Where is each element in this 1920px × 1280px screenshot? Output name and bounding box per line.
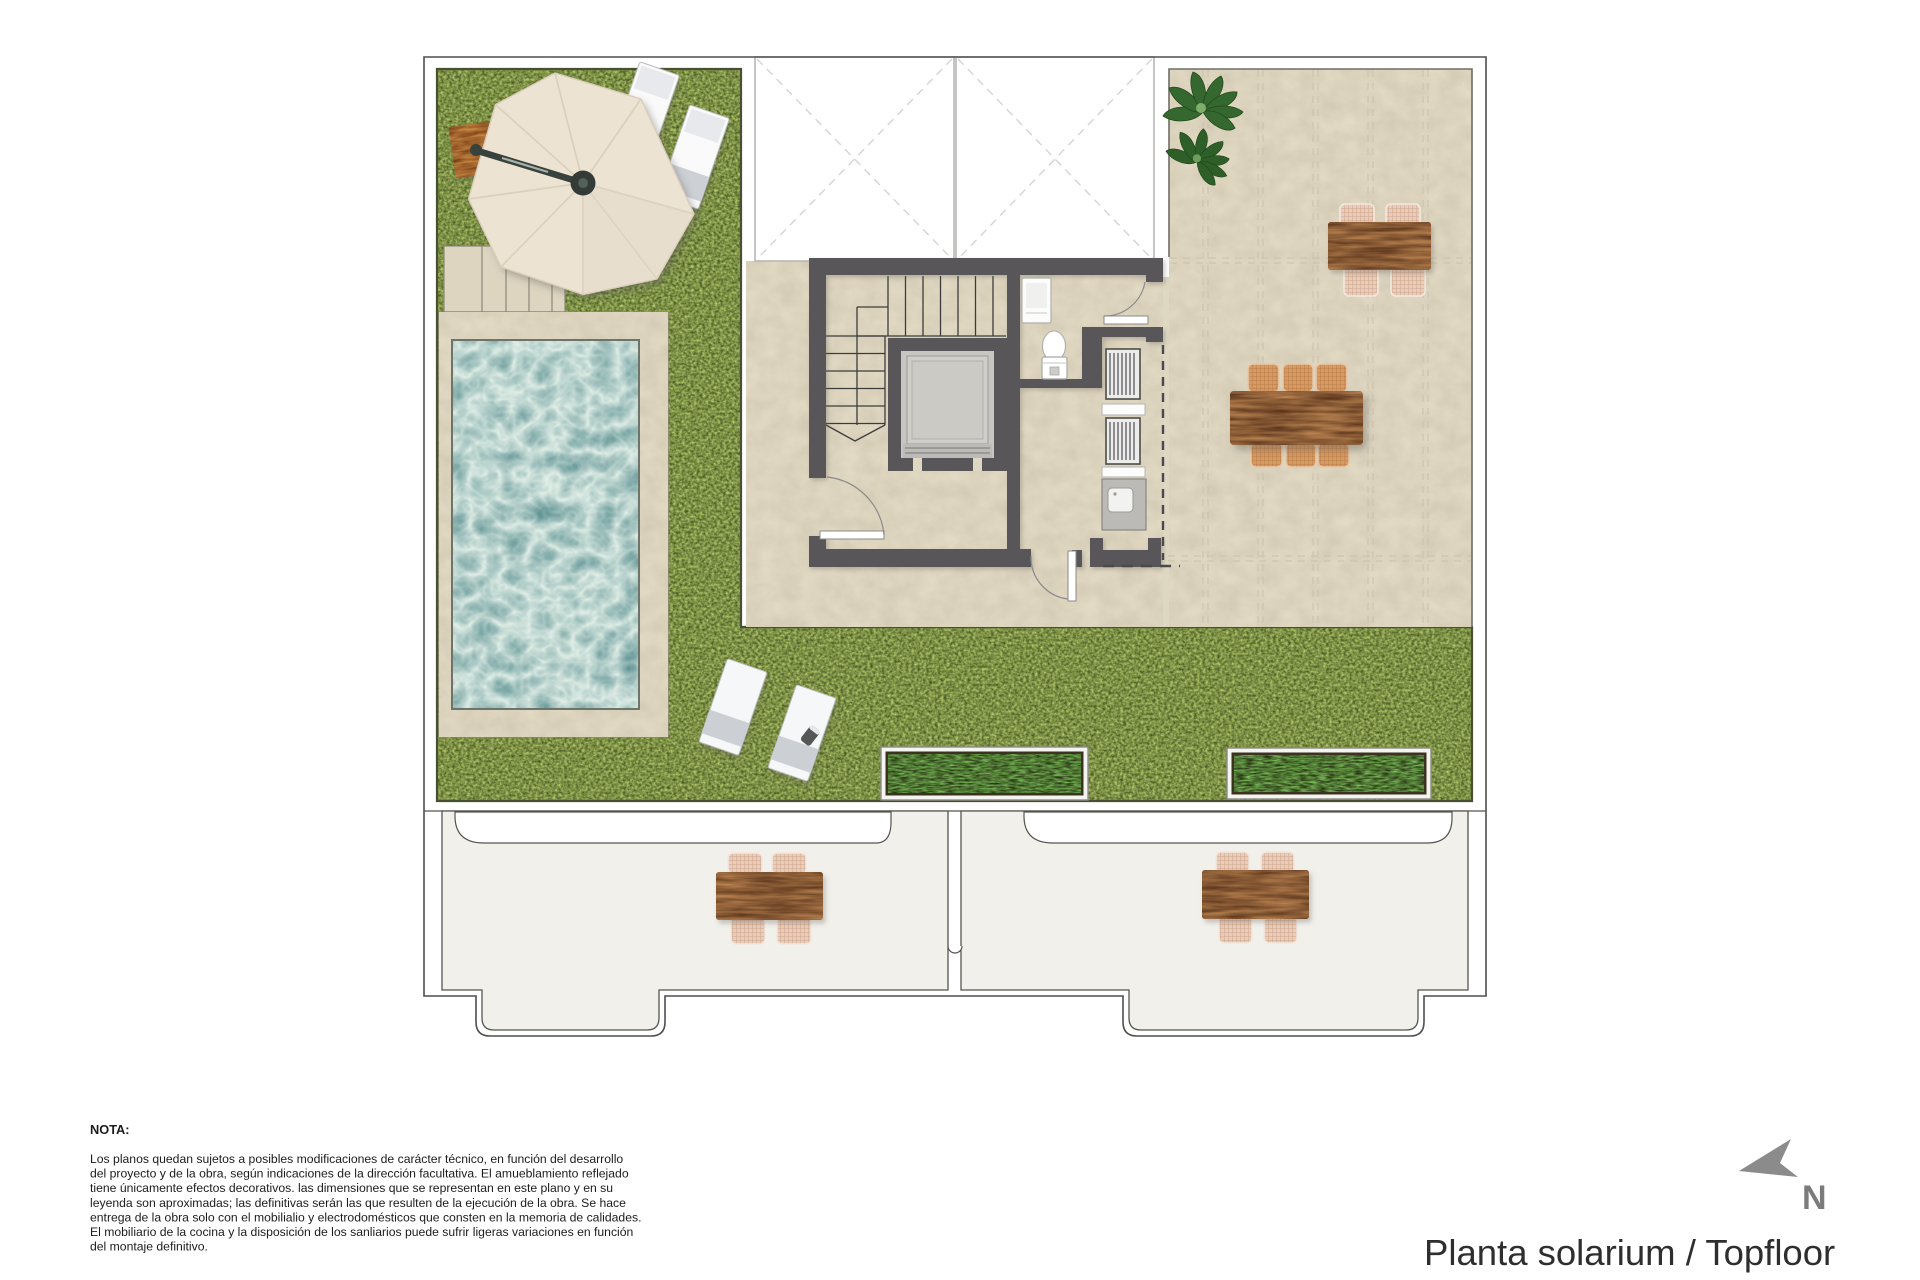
svg-text:NOTA:: NOTA: [90, 1122, 130, 1137]
svg-text:leyenda son aproximadas; las d: leyenda son aproximadas; las definitivas… [90, 1196, 626, 1210]
svg-text:del proyecto y de la obra, seg: del proyecto y de la obra, según indicac… [90, 1167, 629, 1181]
svg-text:Los planos quedan sujetos a po: Los planos quedan sujetos a posibles mod… [90, 1152, 623, 1166]
svg-text:Planta solarium / Topfloor: Planta solarium / Topfloor [1424, 1232, 1835, 1273]
svg-text:del montaje definitivo.: del montaje definitivo. [90, 1240, 208, 1254]
svg-text:El mobiliario de la cocina y l: El mobiliario de la cocina y la disposic… [90, 1225, 633, 1239]
svg-text:N: N [1802, 1179, 1827, 1217]
svg-text:entrega de la obra solo con el: entrega de la obra solo con el mobiliali… [90, 1210, 641, 1224]
svg-text:tiene únicamente efectos decor: tiene únicamente efectos decorativos. la… [90, 1181, 613, 1195]
